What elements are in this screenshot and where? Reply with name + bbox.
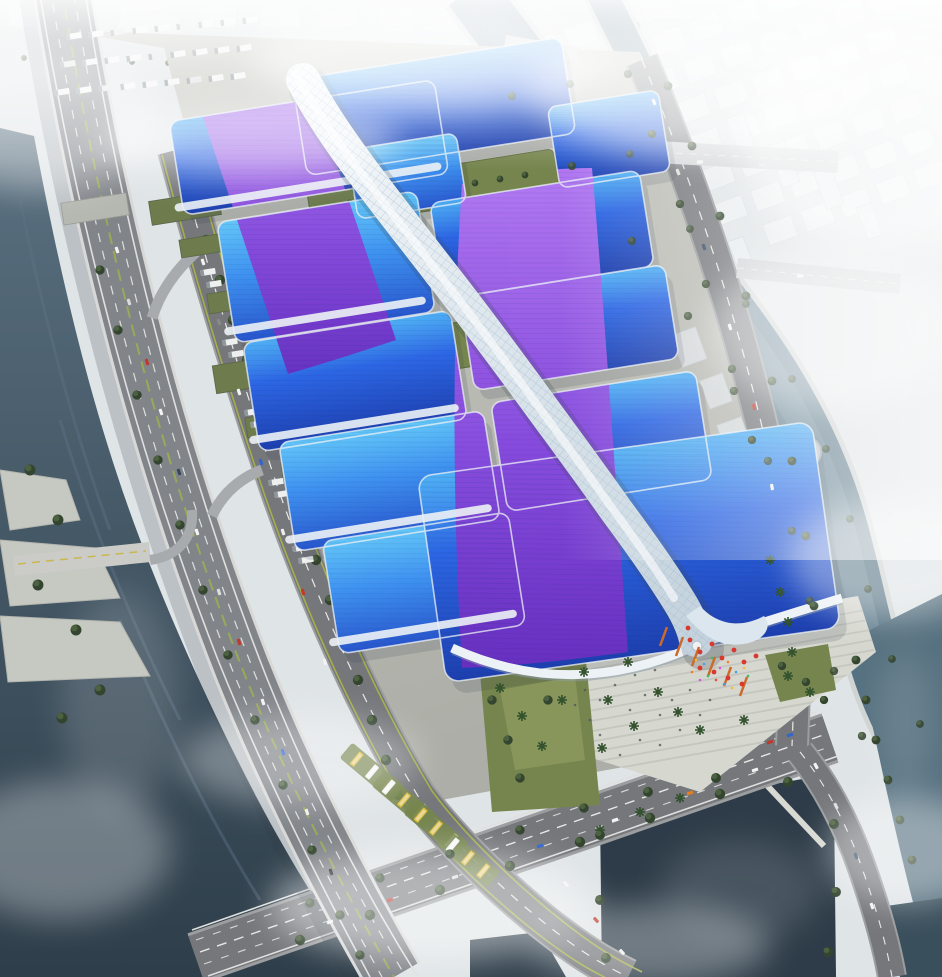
aerial-render [0,0,942,977]
river-bridge [14,552,150,566]
aerial-render-stage [0,0,942,977]
